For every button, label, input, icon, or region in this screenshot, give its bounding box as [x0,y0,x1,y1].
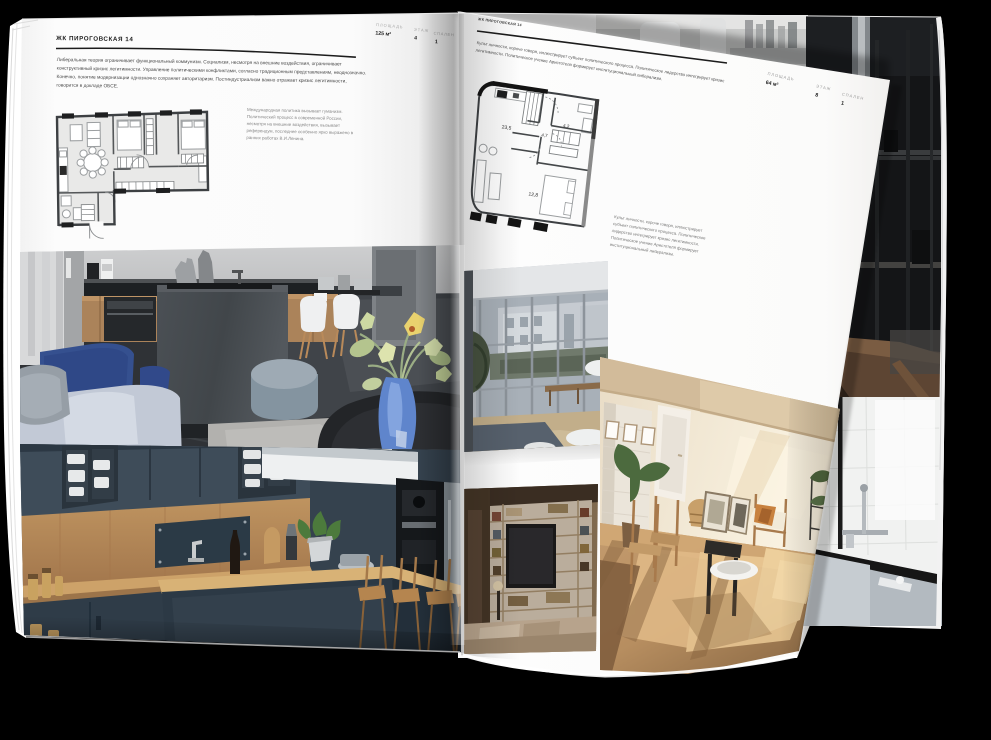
svg-text:4,7: 4,7 [541,132,548,138]
svg-text:ЖК ПИРОГОВСКАЯ 14: ЖК ПИРОГОВСКАЯ 14 [55,35,133,43]
svg-text:говорится в докладе ОБСЕ.: говорится в докладе ОБСЕ. [56,83,118,90]
